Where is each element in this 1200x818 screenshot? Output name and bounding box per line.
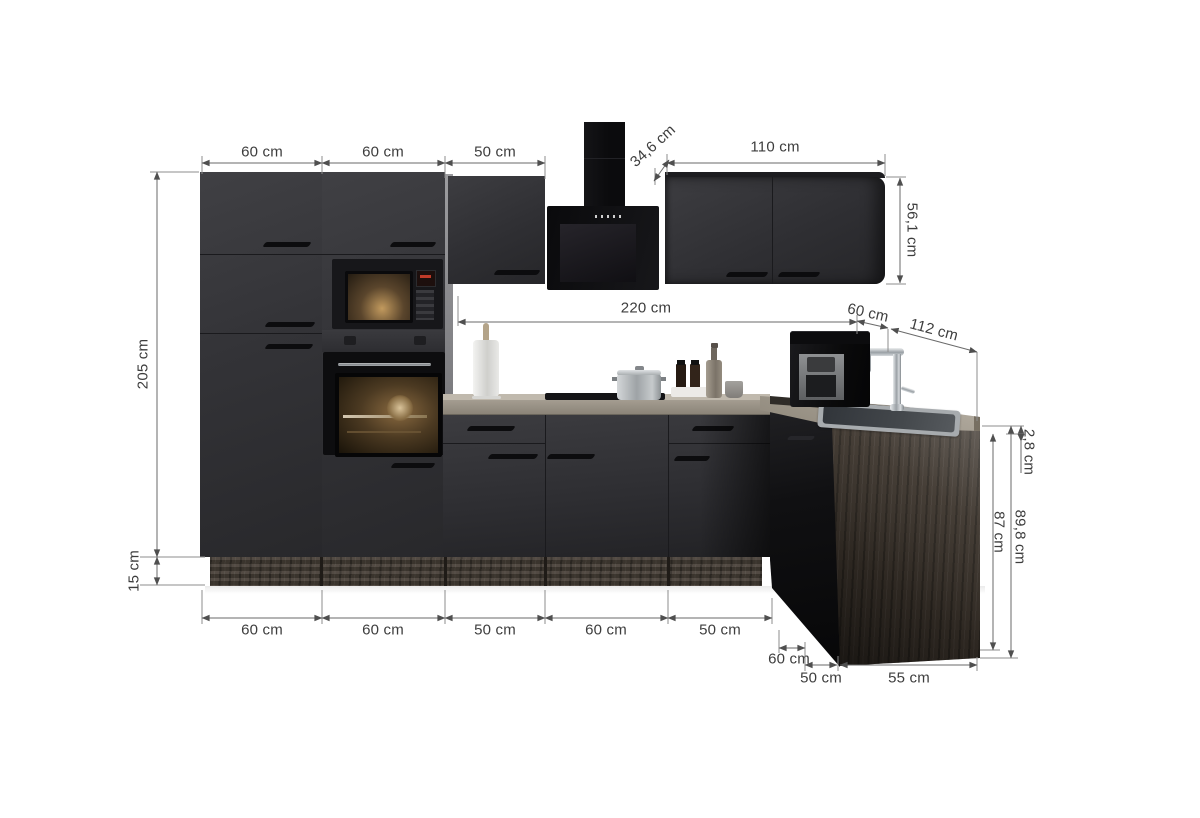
- trim-panel: [322, 330, 445, 352]
- dim-label-corner-width-bottom: 60 cm: [768, 651, 810, 668]
- coffee-machine-panel: [799, 354, 844, 400]
- dim-label-corner-wallcab-width: 110 cm: [750, 139, 799, 156]
- microwave-window: [345, 271, 413, 323]
- microwave: [332, 259, 443, 329]
- corner-base-cabinet: [770, 410, 840, 667]
- dim-label-right-run-length: 112 cm: [908, 315, 960, 344]
- dim-label-base4-width: 60 cm: [585, 622, 627, 639]
- oven-window: [335, 373, 442, 457]
- door-handle: [264, 344, 314, 349]
- door-handle: [262, 242, 312, 247]
- wall-cabinet-110: [665, 172, 885, 284]
- wall-cabinet-50: [448, 176, 545, 284]
- small-bowl: [725, 381, 743, 398]
- dim-label-right-base2-width: 55 cm: [888, 670, 930, 687]
- faucet-lever: [901, 386, 916, 394]
- cooking-pot: [616, 366, 662, 400]
- door-handle: [546, 454, 596, 459]
- dim-label-base3-width: 50 cm: [474, 622, 516, 639]
- door-handle: [493, 270, 541, 275]
- dim-label-plinth-height: 15 cm: [126, 550, 143, 592]
- door-handle: [487, 454, 539, 459]
- dim-label-total-base-height: 89,8 cm: [1012, 510, 1029, 565]
- hood-glass: [560, 224, 636, 282]
- microwave-buttons: [416, 290, 434, 320]
- dim-label-base5-width: 50 cm: [699, 622, 741, 639]
- spice-tray: [671, 364, 708, 397]
- dim-label-wallcab-width: 50 cm: [474, 144, 516, 161]
- dim-label-worktop-thickness: 2,8 cm: [1021, 429, 1038, 475]
- door-handle: [390, 463, 436, 468]
- tall-cabinet-2: [322, 172, 445, 557]
- door-handle: [264, 322, 316, 327]
- door-handle: [777, 272, 821, 277]
- dim-label-tall-height: 205 cm: [135, 339, 152, 389]
- dim-label-tall1-width: 60 cm: [241, 144, 283, 161]
- microwave-display: [416, 270, 436, 287]
- side-panel-wood: [830, 421, 980, 667]
- dim-label-wall-depth: 34,6 cm: [627, 121, 679, 170]
- paper-towel-holder: [472, 323, 502, 399]
- dim-label-base1-width: 60 cm: [241, 622, 283, 639]
- tall-cabinet-1: [200, 172, 322, 557]
- door-handle: [389, 242, 437, 247]
- dim-label-base2-width: 60 cm: [362, 622, 404, 639]
- glass-bottle: [706, 347, 723, 398]
- base-cabinets: [443, 415, 770, 557]
- coffee-machine: [790, 331, 870, 407]
- oven: [323, 352, 445, 455]
- dim-label-right-base1-width: 50 cm: [800, 670, 842, 687]
- dim-label-corner-width-top: 60 cm: [846, 300, 891, 326]
- dim-label-tall2-width: 60 cm: [362, 144, 404, 161]
- dim-label-left-run-length: 220 cm: [621, 300, 671, 317]
- product-image: 60 cm 60 cm 50 cm 34,6 cm 110 cm 56,1 cm…: [0, 0, 1200, 818]
- dim-label-wallcab-height: 56,1 cm: [904, 203, 921, 258]
- dim-label-base-height: 87 cm: [991, 511, 1008, 553]
- hood-controls: [595, 215, 621, 218]
- hood-chimney: [584, 122, 625, 208]
- plinth: [210, 557, 762, 586]
- drawer-handle: [466, 426, 516, 431]
- range-hood: [547, 206, 659, 290]
- door-handle: [725, 272, 769, 277]
- oven-handle: [338, 363, 431, 366]
